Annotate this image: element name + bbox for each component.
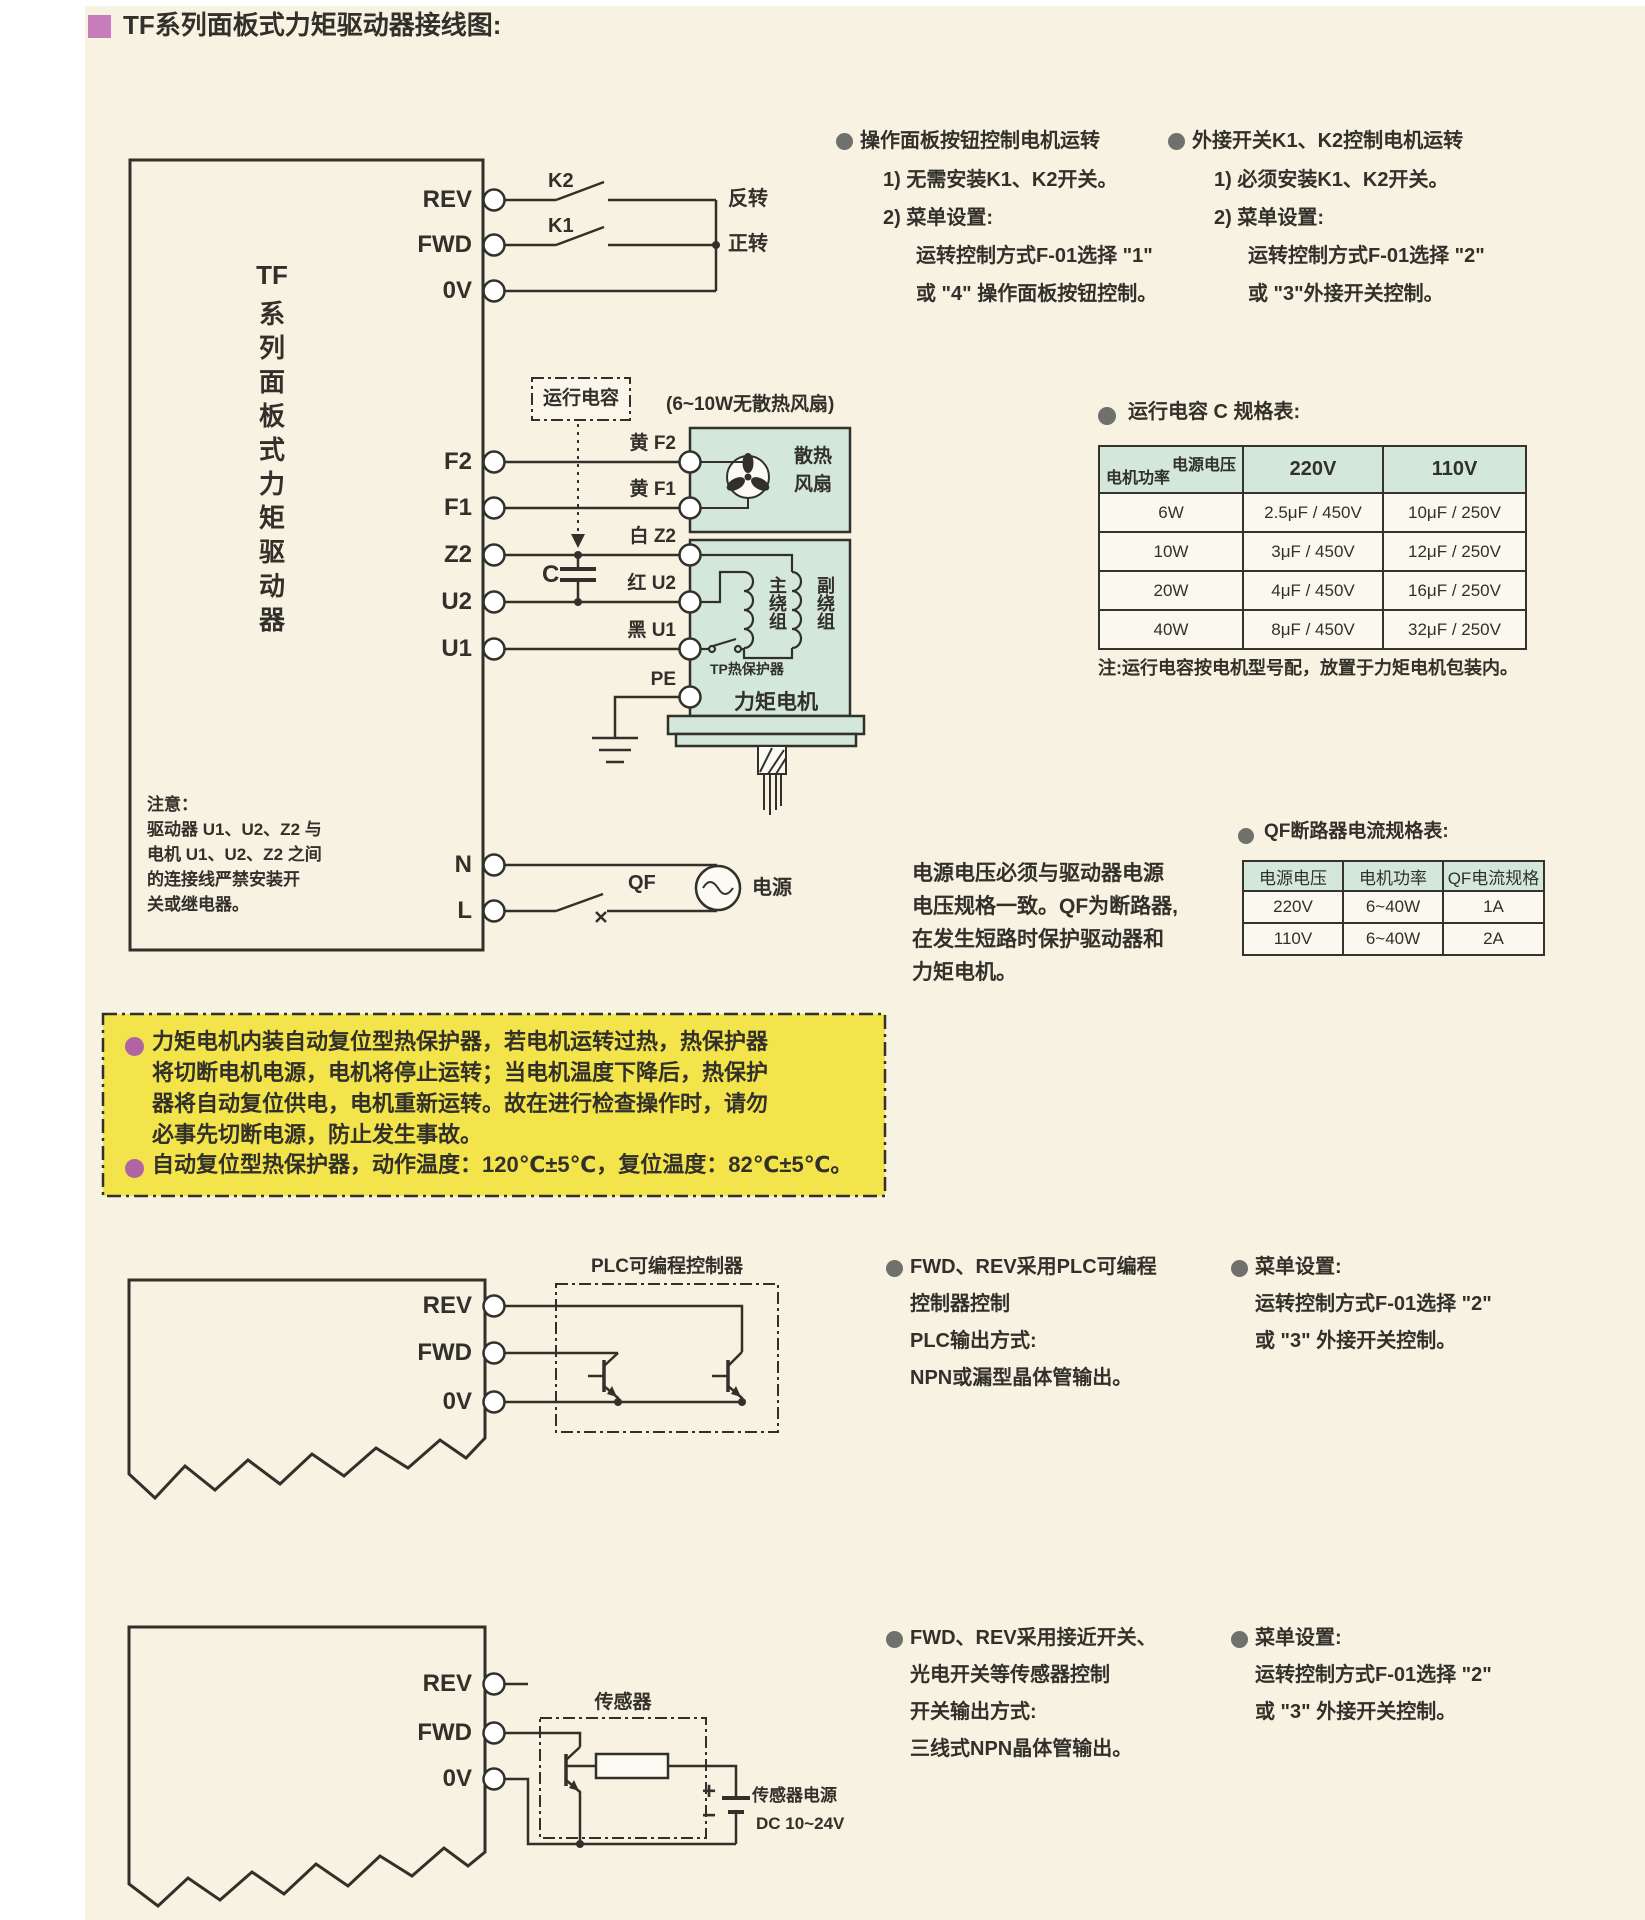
warning-line: 必事先切断电源，防止发生事故。 <box>152 1119 768 1150</box>
bullet-icon <box>886 1631 903 1648</box>
driver-name-part: 列 <box>259 328 285 362</box>
note-right-item2: 2) 菜单设置: <box>1214 207 1324 230</box>
sensor-box-label: 传感器 <box>540 1692 706 1714</box>
power-note-line: 电压规格一致。QF为断路器, <box>912 890 1178 923</box>
title-square-icon <box>88 15 111 38</box>
cell: 12μF / 250V <box>1383 532 1526 571</box>
warning-bullet-icon <box>125 1159 144 1178</box>
sensor-terminal-0v: 0V <box>368 1765 472 1793</box>
caution-line: 注意： <box>147 792 322 817</box>
sensor-menu-heading: 菜单设置: <box>1255 1627 1342 1650</box>
bullet-icon <box>836 133 853 150</box>
note-right-heading: 外接开关K1、K2控制电机运转 <box>1192 130 1463 153</box>
qf-header: 电机功率 <box>1343 861 1443 891</box>
terminal-n: N <box>368 851 472 879</box>
switch-k1-label: K1 <box>548 215 574 238</box>
bullet-icon <box>1231 1260 1248 1277</box>
bullet-icon <box>1231 1631 1248 1648</box>
driver-name-part: 力 <box>259 464 285 498</box>
plc-terminal-0v: 0V <box>368 1388 472 1416</box>
bullet-icon <box>1238 828 1254 844</box>
driver-name-part: TF <box>256 260 288 294</box>
cell: 3μF / 450V <box>1243 532 1383 571</box>
sensor-note-l3: 开关输出方式: <box>910 1701 1037 1724</box>
bullet-icon <box>886 1260 903 1277</box>
plc-menu-l3: 或 "3" 外接开关控制。 <box>1255 1330 1456 1353</box>
cap-table-row: 10W 3μF / 450V 12μF / 250V <box>1099 532 1526 571</box>
cap-table-row: 6W 2.5μF / 450V 10μF / 250V <box>1099 493 1526 532</box>
sensor-power-voltage: DC 10~24V <box>756 1814 844 1834</box>
sensor-terminal-circles <box>484 1674 505 1790</box>
motor-shaft <box>758 746 786 815</box>
terminal-0v: 0V <box>368 277 472 305</box>
qf-table-title: QF断路器电流规格表: <box>1264 821 1449 843</box>
driver-name-part: 面 <box>259 362 285 396</box>
plc-terminal-fwd: FWD <box>368 1339 472 1367</box>
bullet-icon <box>1168 133 1185 150</box>
cell: 8μF / 450V <box>1243 610 1383 649</box>
tp-protector-label: TP热保护器 <box>710 661 784 677</box>
cap-table-col-220v: 220V <box>1243 446 1383 493</box>
reverse-label: 反转 <box>728 188 768 211</box>
caution-line: 的连接线严禁安装开 <box>147 867 322 892</box>
qf-label: QF <box>628 872 656 895</box>
cell: 10W <box>1099 532 1243 571</box>
warning-line: 将切断电机电源，电机将停止运转；当电机温度下降后，热保护 <box>152 1057 768 1088</box>
note-left-item1: 1) 无需安装K1、K2开关。 <box>883 169 1117 192</box>
cell: 220V <box>1243 891 1343 923</box>
torque-motor-label: 力矩电机 <box>734 691 818 715</box>
qf-table: 电源电压 电机功率 QF电流规格 220V 6~40W 1A 110V 6~40… <box>1242 860 1545 956</box>
cap-table-corner-cell: 电源电压 电机功率 <box>1099 446 1243 493</box>
terminal-z2: Z2 <box>368 541 472 569</box>
driver-name-part: 式 <box>259 430 285 464</box>
fan-label-line2: 风扇 <box>794 474 832 496</box>
wire-label-f2: 黄 F2 <box>560 433 676 455</box>
power-note-line: 在发生短路时保护驱动器和 <box>912 923 1178 956</box>
plc-box-label: PLC可编程控制器 <box>556 1256 778 1278</box>
sensor-terminal-rev: REV <box>368 1670 472 1698</box>
plc-circuit <box>504 1284 778 1432</box>
caution-line: 电机 U1、U2、Z2 之间 <box>147 842 322 867</box>
plc-note-heading: FWD、REV采用PLC可编程 <box>910 1256 1157 1279</box>
sensor-power-label: 传感器电源 <box>752 1786 837 1806</box>
note-right-sub2: 或 "3"外接开关控制。 <box>1248 283 1444 306</box>
fan-note: (6~10W无散热风扇) <box>666 394 834 416</box>
driver-name-part: 板 <box>259 396 285 430</box>
fan-label-line1: 散热 <box>794 446 832 468</box>
wire-label-f1: 黄 F1 <box>560 479 676 501</box>
wire-label-pe: PE <box>626 669 676 691</box>
qf-header: 电源电压 <box>1243 861 1343 891</box>
terminal-f2: F2 <box>368 448 472 476</box>
cell: 32μF / 250V <box>1383 610 1526 649</box>
cell: 4μF / 450V <box>1243 571 1383 610</box>
note-right-sub1: 运转控制方式F-01选择 "2" <box>1248 245 1485 268</box>
sensor-note-heading: FWD、REV采用接近开关、 <box>910 1627 1157 1650</box>
cap-table-note: 注:运行电容按电机型号配，放置于力矩电机包装内。 <box>1098 658 1518 679</box>
warning-text-block: 力矩电机内装自动复位型热保护器，若电机运转过热，热保护器 将切断电机电源，电机将… <box>152 1026 768 1150</box>
plc-terminal-rev: REV <box>368 1292 472 1320</box>
driver-caution-note: 注意： 驱动器 U1、U2、Z2 与 电机 U1、U2、Z2 之间 的连接线严禁… <box>147 792 322 917</box>
run-capacitor-label: 运行电容 <box>532 388 630 410</box>
battery-minus-sign: − <box>702 1802 716 1830</box>
warning-temp-line: 自动复位型热保护器，动作温度：120℃±5℃，复位温度：82℃±5℃。 <box>152 1152 852 1177</box>
driver-terminal-circles <box>484 190 505 922</box>
k-switch-circuit <box>504 182 720 291</box>
caution-line: 驱动器 U1、U2、Z2 与 <box>147 817 322 842</box>
cell: 20W <box>1099 571 1243 610</box>
cell: 2A <box>1443 923 1544 955</box>
qf-header: QF电流规格 <box>1443 861 1544 891</box>
note-left-sub1: 运转控制方式F-01选择 "1" <box>916 245 1153 268</box>
cell: 40W <box>1099 610 1243 649</box>
driver-name-vertical: TF 系 列 面 板 式 力 矩 驱 动 器 <box>246 260 298 634</box>
aux-winding-label: 副绕组 <box>812 576 838 630</box>
corner-top-label: 电源电压 <box>1172 451 1236 475</box>
note-left-item2: 2) 菜单设置: <box>883 207 993 230</box>
power-voltage-note: 电源电压必须与驱动器电源 电压规格一致。QF为断路器, 在发生短路时保护驱动器和… <box>912 857 1178 989</box>
page: TF系列面板式力矩驱动器接线图: TF 系 列 面 板 式 力 矩 驱 动 器 … <box>0 0 1645 1920</box>
capacitor-c-label: C <box>542 561 559 589</box>
driver-name-part: 器 <box>259 600 285 634</box>
terminal-u2: U2 <box>368 588 472 616</box>
wire-label-u1: 黑 U1 <box>560 620 676 642</box>
terminal-u1: U1 <box>368 635 472 663</box>
caution-line: 关或继电器。 <box>147 892 322 917</box>
warning-line: 力矩电机内装自动复位型热保护器，若电机运转过热，热保护器 <box>152 1026 768 1057</box>
bullet-icon <box>1098 407 1116 425</box>
sensor-terminal-fwd: FWD <box>368 1719 472 1747</box>
power-circuit <box>504 865 740 922</box>
main-winding-label: 主绕组 <box>764 576 790 630</box>
wire-label-z2: 白 Z2 <box>560 526 676 548</box>
power-note-line: 力矩电机。 <box>912 956 1178 989</box>
pe-ground <box>592 697 679 762</box>
terminal-fwd: FWD <box>368 231 472 259</box>
page-title: TF系列面板式力矩驱动器接线图: <box>123 11 501 41</box>
plc-terminal-circles <box>484 1296 505 1413</box>
terminal-rev: REV <box>368 186 472 214</box>
power-source-label: 电源 <box>752 877 792 900</box>
sensor-note-l4: 三线式NPN晶体管输出。 <box>910 1738 1132 1761</box>
plc-note-l4: NPN或漏型晶体管输出。 <box>910 1367 1132 1390</box>
driver-name-part: 驱 <box>259 532 285 566</box>
cap-table-col-110v: 110V <box>1383 446 1526 493</box>
qf-table-row: 110V 6~40W 2A <box>1243 923 1544 955</box>
plc-menu-l2: 运转控制方式F-01选择 "2" <box>1255 1293 1492 1316</box>
driver-name-part: 动 <box>259 566 285 600</box>
cell: 2.5μF / 450V <box>1243 493 1383 532</box>
plc-note-l3: PLC输出方式: <box>910 1330 1037 1353</box>
cell: 10μF / 250V <box>1383 493 1526 532</box>
cap-table-title: 运行电容 C 规格表: <box>1128 401 1300 424</box>
sensor-menu-l3: 或 "3" 外接开关控制。 <box>1255 1701 1456 1724</box>
power-note-line: 电源电压必须与驱动器电源 <box>912 857 1178 890</box>
cell: 6~40W <box>1343 923 1443 955</box>
cap-table-row: 20W 4μF / 450V 16μF / 250V <box>1099 571 1526 610</box>
terminal-l: L <box>368 897 472 925</box>
driver-name-part: 系 <box>259 294 285 328</box>
sensor-note-l2: 光电开关等传感器控制 <box>910 1664 1110 1687</box>
cell: 1A <box>1443 891 1544 923</box>
forward-label: 正转 <box>728 233 768 256</box>
plc-note-l2: 控制器控制 <box>910 1293 1010 1316</box>
note-left-sub2: 或 "4" 操作面板按钮控制。 <box>916 283 1157 306</box>
cell: 16μF / 250V <box>1383 571 1526 610</box>
warning-bullet-icon <box>125 1037 144 1056</box>
cell: 6W <box>1099 493 1243 532</box>
terminal-f1: F1 <box>368 494 472 522</box>
cell: 110V <box>1243 923 1343 955</box>
cell: 6~40W <box>1343 891 1443 923</box>
driver-name-part: 矩 <box>259 498 285 532</box>
wire-label-u2: 红 U2 <box>560 573 676 595</box>
sensor-menu-l2: 运转控制方式F-01选择 "2" <box>1255 1664 1492 1687</box>
qf-table-row: 220V 6~40W 1A <box>1243 891 1544 923</box>
warning-line: 器将自动复位供电，电机重新运转。故在进行检查操作时，请勿 <box>152 1088 768 1119</box>
plc-menu-heading: 菜单设置: <box>1255 1256 1342 1279</box>
note-right-item1: 1) 必须安装K1、K2开关。 <box>1214 169 1448 192</box>
note-left-heading: 操作面板按钮控制电机运转 <box>860 130 1100 153</box>
cap-table-row: 40W 8μF / 450V 32μF / 250V <box>1099 610 1526 649</box>
switch-k2-label: K2 <box>548 170 574 193</box>
cap-table: 电源电压 电机功率 220V 110V 6W 2.5μF / 450V 10μF… <box>1098 445 1527 650</box>
corner-bottom-label: 电机功率 <box>1106 464 1170 488</box>
